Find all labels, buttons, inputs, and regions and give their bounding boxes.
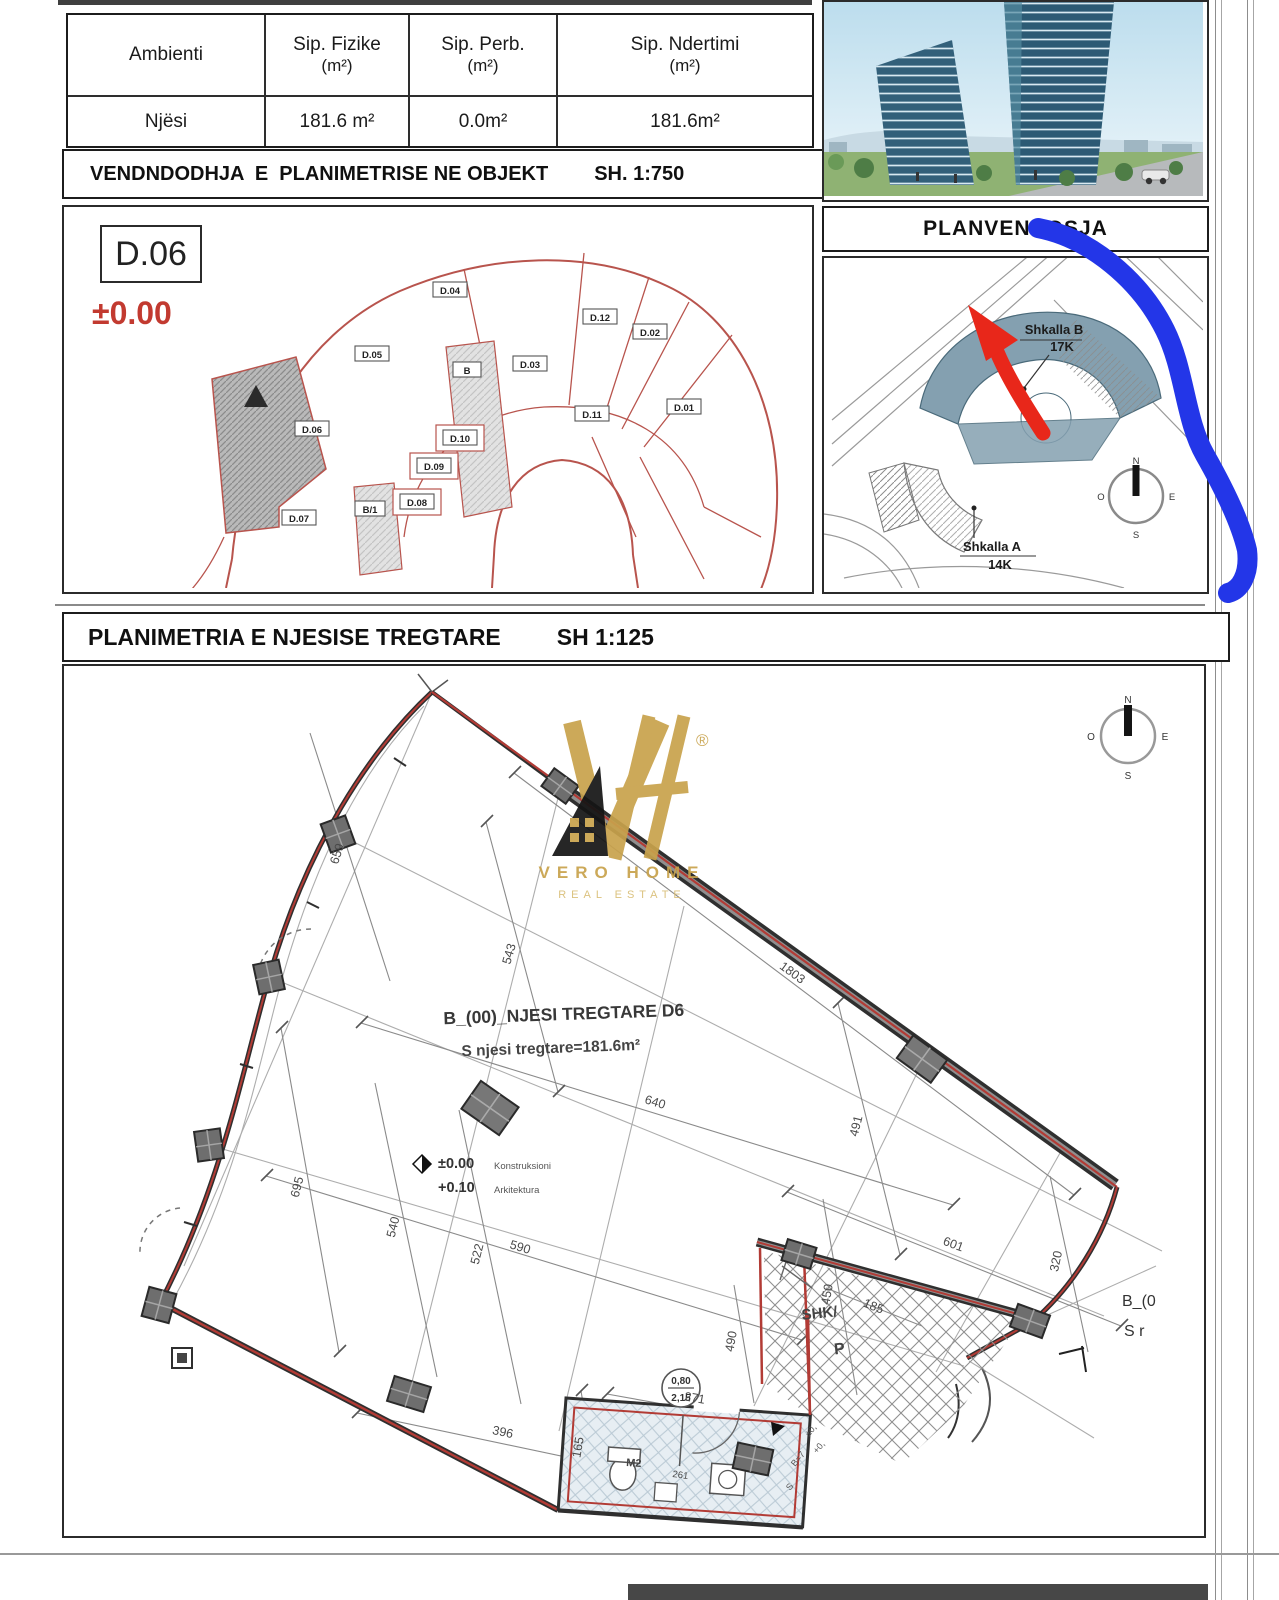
scanned-floorplan-page: { "table": { "columns": [ {"title": "Amb… [0,0,1279,1600]
section-title-planvendosja: PLANVENDOSJA [822,206,1209,252]
unit-label: D.11 [582,410,602,421]
dim-label: 490 [722,1330,739,1353]
section2-scale: SH 1:125 [557,624,654,651]
dim-label: 396 [491,1423,514,1441]
col-title: Sip. Fizike [293,34,381,56]
unit-label: D.09 [424,462,444,473]
unit-label: D.05 [362,350,383,361]
unit-label: D.12 [590,313,610,324]
compass-n: N [1133,456,1140,467]
stair-b-name: Shkalla B [1025,322,1084,337]
table-header-ndertimi: Sip. Ndertimi(m²) [558,15,812,97]
cell-value: 181.6 m² [300,111,375,133]
table-header-perb: Sip. Perb.(m²) [410,15,558,97]
separator-line-bottom [0,1553,1279,1555]
unit-title-text: B_(00)_NJESI TREGTARE D6 [443,1000,685,1028]
cell-value: 0.0m² [459,111,508,133]
main-floorplan-box: ® VERO HOME REAL ESTATE B_(00)_NJESI TRE… [62,664,1206,1538]
compass-o: O [1097,492,1104,503]
side-mark: +0, [811,1439,827,1455]
scan-edge-line-2 [1247,0,1254,1600]
col-title: Sip. Ndertimi [631,34,740,56]
watermark-line2: REAL ESTATE [558,889,686,901]
right-text-2: S r [1124,1323,1145,1340]
compass-icon: N O E S [1087,695,1169,782]
compass-e: E [1169,492,1175,503]
top-wall [432,692,1117,1187]
stair-a-floors: 14K [988,557,1012,572]
dim-label: 261 [672,1469,689,1482]
stair-b-floors: 17K [1050,339,1074,354]
table-value-fizike: 181.6 m² [266,97,410,146]
planvendosja-title: PLANVENDOSJA [923,217,1108,241]
unit-label: D.01 [674,403,695,414]
table-header-ambienti: Ambienti [68,15,266,97]
door-width: 0,80 [671,1376,691,1387]
tower-right [1004,2,1114,185]
level-label: ±0.00 [92,295,172,332]
scan-top-strip [58,0,812,5]
section1-title: VENDNDODHJA E PLANIMETRISE NE OBJEKT [90,163,548,186]
watermark-line1: VERO HOME [539,863,706,882]
dim-label: 590 [508,1237,532,1257]
compass-s: S [1133,530,1139,541]
compass-icon: N O E S [1097,456,1175,541]
dim-label: 695 [288,1175,307,1199]
bathroom [558,1394,810,1527]
dim-label: 522 [468,1242,487,1266]
unit-d06-highlight [212,357,326,533]
col-title: Ambienti [129,44,203,66]
unit-badge: D.06 [100,225,202,283]
door-arc-2 [140,1208,180,1254]
compass-s: S [1125,771,1132,782]
compass-e: E [1162,732,1169,743]
table-row-label: Njësi [68,97,266,146]
unit-label: D.06 [302,425,322,436]
dim-label: 543 [500,942,519,966]
site-plan-box: Shkalla B 17K Shkalla A 14K N O E S [822,256,1209,594]
dim-label: 320 [1047,1249,1065,1272]
unit-label: B [464,366,471,377]
col-unit: (m²) [321,56,352,76]
location-plan-box: D.04 D.12 D.02 D.05 B D.03 D.01 D.11 D.0… [62,205,814,594]
dim-label: 640 [643,1092,667,1112]
level-arch: +0.10 [438,1180,475,1196]
col-title: Sip. Perb. [441,34,524,56]
unit-label: D.02 [640,328,660,339]
separator-line-top [55,604,1205,606]
unit-area-text: S njesi tregtare=181.6m² [461,1037,640,1060]
row-label: Njësi [145,111,187,133]
unit-label: D.08 [407,498,427,509]
areas-table: Ambienti Sip. Fizike(m²) Sip. Perb.(m²) … [66,13,814,148]
building-photo [822,0,1209,202]
dim-label: 540 [384,1215,403,1239]
table-header-fizike: Sip. Fizike(m²) [266,15,410,97]
section-title-vendndodhja: VENDNDODHJA E PLANIMETRISE NE OBJEKT SH.… [62,149,840,199]
scan-edge-line-1 [1215,0,1222,1600]
scan-bottom-bar [628,1584,1208,1600]
section2-title: PLANIMETRIA E NJESISE TREGTARE [88,624,501,651]
unit-label: D.07 [289,514,309,525]
unit-label: D.10 [450,434,470,445]
stair-sub: P [833,1340,846,1358]
level-marker: ±0.00 Konstruksioni +0.10 Arkitektura [413,1155,551,1196]
level-arch-label: Arkitektura [494,1185,540,1196]
col-unit: (m²) [467,56,498,76]
fixture [654,1482,677,1501]
level-constr-label: Konstruksioni [494,1161,551,1172]
table-value-ndertimi: 181.6m² [558,97,812,146]
unit-label: B/1 [363,505,379,516]
stair-a-name: Shkalla A [963,539,1022,554]
table-value-perb: 0.0m² [410,97,558,146]
vero-home-watermark: ® VERO HOME REAL ESTATE [539,716,709,901]
building-render-image [824,2,1203,196]
section-title-planimetria: PLANIMETRIA E NJESISE TREGTARE SH 1:125 [62,612,1230,662]
compass-o: O [1087,732,1095,743]
drain-symbol [172,1348,192,1368]
cell-value: 181.6m² [650,111,720,133]
right-text-1: B_(0 [1122,1293,1156,1310]
site-plan-drawing: Shkalla B 17K Shkalla A 14K N O E S [824,258,1203,588]
section1-scale: SH. 1:750 [594,163,684,186]
room-label: M2 [626,1457,642,1470]
compass-n: N [1124,695,1131,706]
unit-label: D.03 [520,360,540,371]
dim-label: 491 [847,1114,866,1138]
col-unit: (m²) [669,56,700,76]
level-constr: ±0.00 [438,1156,474,1172]
main-floorplan-drawing: ® VERO HOME REAL ESTATE B_(00)_NJESI TRE… [64,666,1200,1532]
unit-badge-text: D.06 [115,235,187,274]
unit-label: D.04 [440,286,461,297]
registered-icon: ® [696,731,709,750]
